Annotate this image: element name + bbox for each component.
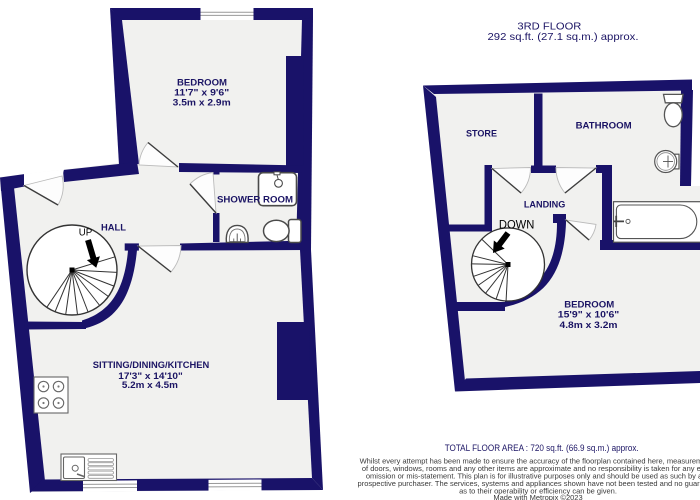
- svg-text:HALL: HALL: [101, 223, 126, 234]
- svg-text:5.2m x 4.5m: 5.2m x 4.5m: [122, 380, 178, 391]
- svg-text:15'9" x 10'6": 15'9" x 10'6": [558, 310, 620, 321]
- svg-text:SITTING/DINING/KITCHEN: SITTING/DINING/KITCHEN: [93, 360, 210, 371]
- svg-text:Made with Metropix ©2023: Made with Metropix ©2023: [493, 493, 582, 500]
- svg-text:UP: UP: [79, 227, 93, 239]
- svg-text:BATHROOM: BATHROOM: [576, 121, 632, 132]
- svg-text:3.5m x 2.9m: 3.5m x 2.9m: [173, 98, 231, 109]
- svg-text:292 sq.ft. (27.1 sq.m.) approx: 292 sq.ft. (27.1 sq.m.) approx.: [488, 31, 639, 43]
- svg-text:TOTAL FLOOR AREA : 720 sq.ft.: TOTAL FLOOR AREA : 720 sq.ft. (66.9 sq.m…: [445, 443, 639, 453]
- svg-text:SHOWER ROOM: SHOWER ROOM: [217, 194, 293, 205]
- svg-text:STORE: STORE: [466, 129, 498, 140]
- svg-text:LANDING: LANDING: [524, 200, 566, 211]
- svg-text:4.8m x 3.2m: 4.8m x 3.2m: [560, 320, 618, 331]
- svg-text:DOWN: DOWN: [499, 218, 535, 232]
